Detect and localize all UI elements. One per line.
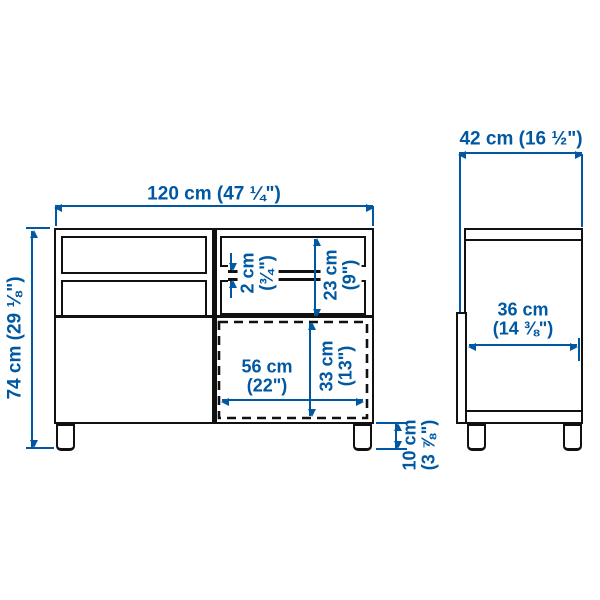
- label-bottom-compartment-width: 56 cm (22"): [241, 358, 292, 397]
- label-bottom-height-cm: 33 cm: [318, 340, 337, 391]
- dim-line-side-inner-depth: [469, 344, 577, 346]
- dim-line-side-depth: [459, 152, 582, 154]
- front-right-leg: [353, 424, 372, 451]
- compartment-left-upper: [220, 236, 222, 267]
- compartment-left-tick-upper: [220, 265, 228, 267]
- front-left-leg: [56, 424, 75, 451]
- ext-line-side-inner-depth: [578, 338, 580, 361]
- dim-arrow-shelf-above: [230, 253, 232, 270]
- drawer-front-top: [61, 236, 207, 274]
- label-leg-in: (3 ⅞"): [420, 419, 439, 470]
- compartment-right-upper: [364, 236, 366, 267]
- label-front-width: 120 cm (47 ¼"): [147, 185, 281, 206]
- dim-line-bottom-compartment-height: [309, 323, 311, 416]
- dim-line-top-compartment-height: [314, 239, 316, 316]
- label-side-inner-in: (14 ⅜"): [493, 320, 554, 339]
- ext-line-side-depth-left: [459, 154, 461, 312]
- label-side-inner-depth: 36 cm (14 ⅜"): [493, 301, 554, 340]
- label-shelf-thickness-cm: 2 cm: [239, 252, 258, 293]
- dimension-diagram: 120 cm (47 ¼") 74 cm (29 ⅛") 2 cm (¾") 2…: [0, 0, 600, 600]
- label-bottom-width-in: (22"): [241, 377, 292, 396]
- ext-line-front-width-left: [55, 206, 57, 226]
- side-front-leg: [467, 424, 486, 451]
- ext-line-front-height-bottom: [26, 447, 54, 449]
- compartment-left-lower: [220, 280, 222, 315]
- label-side-inner-cm: 36 cm: [493, 301, 554, 320]
- label-shelf-thickness-in: (¾"): [258, 252, 277, 293]
- dim-line-front-width: [55, 205, 373, 207]
- label-leg-cm: 10 cm: [401, 419, 420, 470]
- side-back-leg: [563, 424, 582, 451]
- label-top-compartment-cm: 23 cm: [322, 249, 341, 300]
- compartment-top-line: [220, 236, 366, 238]
- label-side-depth: 42 cm (16 ½"): [459, 130, 582, 151]
- ext-line-front-width-right: [372, 206, 374, 226]
- label-front-height: 74 cm (29 ⅛"): [6, 276, 27, 399]
- label-shelf-thickness: 2 cm (¾"): [238, 249, 279, 296]
- dim-line-leg-height: [395, 424, 397, 448]
- label-top-compartment-height: 23 cm (9"): [321, 246, 362, 303]
- compartment-right-lower: [364, 280, 366, 315]
- compartment-bottom-line: [220, 313, 366, 315]
- side-bottom-panel-line: [464, 410, 583, 412]
- dim-arrow-shelf-below: [230, 281, 232, 298]
- dim-line-bottom-compartment-width: [222, 399, 363, 401]
- dim-line-front-height: [31, 231, 33, 447]
- label-leg-height: 10 cm (3 ⅞"): [401, 419, 440, 470]
- drawer-front-bottom: [61, 280, 207, 317]
- side-top-panel-line: [464, 239, 583, 241]
- ext-line-side-depth-right: [581, 154, 583, 227]
- label-bottom-compartment-height: 33 cm (13"): [318, 340, 357, 391]
- label-bottom-height-in: (13"): [337, 340, 356, 391]
- ext-line-front-height-top: [26, 227, 50, 229]
- side-door-front: [456, 312, 467, 424]
- label-top-compartment-in: (9"): [341, 249, 360, 300]
- label-bottom-width-cm: 56 cm: [241, 358, 292, 377]
- compartment-left-tick-lower: [220, 280, 228, 282]
